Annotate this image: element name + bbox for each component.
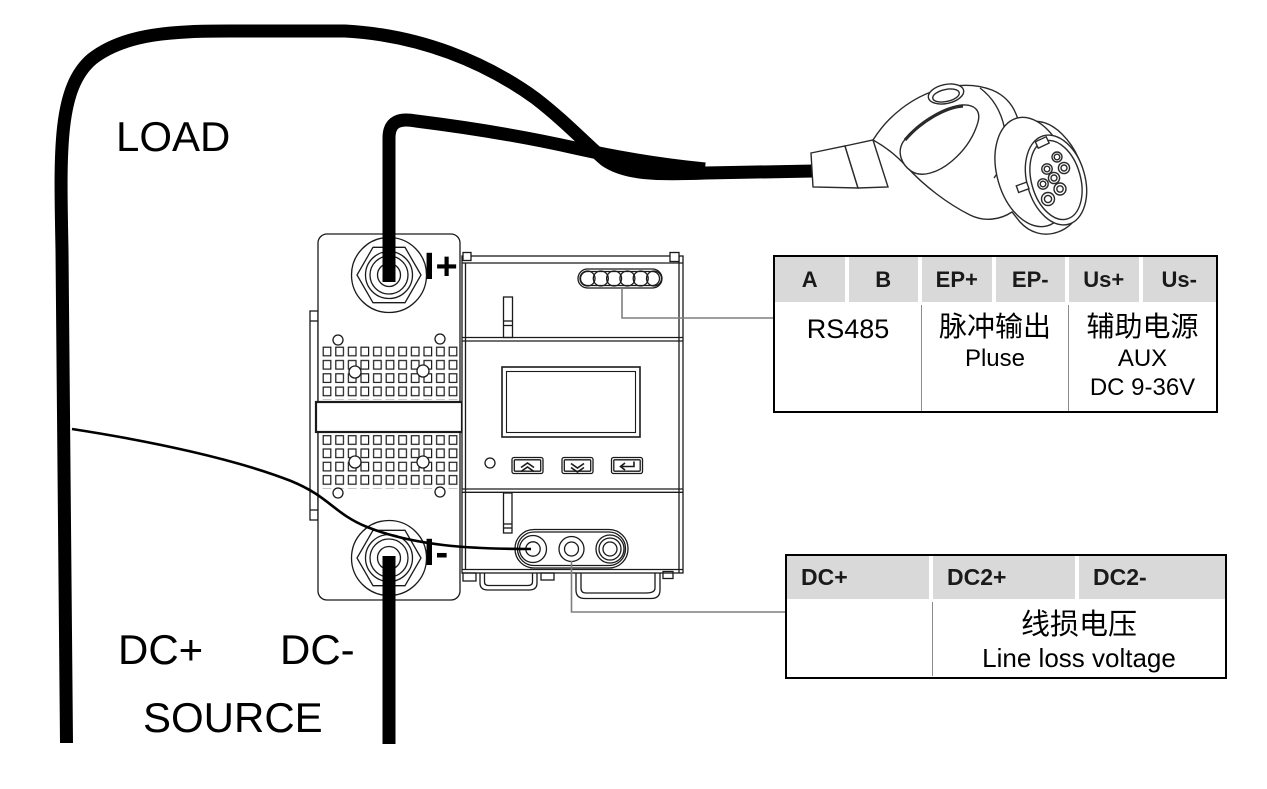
terminal-table-top: A B EP+ EP- Us+ Us- RS485 脉冲输出 Pluse 辅助电…	[773, 255, 1218, 413]
ev-connector	[811, 81, 1097, 236]
source-dc-plus-label: DC+	[118, 627, 203, 673]
cell-aux-power: 辅助电源 AUX DC 9-36V	[1069, 305, 1216, 411]
shunt-terminal-positive-label: I+	[424, 247, 459, 289]
header-cell-dc2-minus: DC2-	[1079, 556, 1225, 602]
header-cell-ep-minus: EP-	[996, 257, 1070, 305]
shunt-perforation-upper	[321, 345, 458, 400]
terminal-table-bottom-header: DC+ DC2+ DC2-	[787, 556, 1225, 602]
energy-meter	[462, 253, 683, 599]
terminal-table-bottom-body: 线损电压 Line loss voltage	[787, 602, 1225, 676]
shunt-perforation-lower	[321, 434, 458, 489]
cell-pulse-output: 脉冲输出 Pluse	[922, 305, 1069, 411]
cell-dc-plus-empty	[787, 602, 933, 676]
header-cell-ep-plus: EP+	[922, 257, 996, 305]
wiring-diagram: LOAD DC+ DC- SOURCE I+ I- A B EP+ EP- Us…	[0, 0, 1267, 789]
terminal-table-bottom: DC+ DC2+ DC2- 线损电压 Line loss voltage	[785, 554, 1227, 679]
header-cell-dc2-plus: DC2+	[933, 556, 1079, 602]
terminal-table-top-header: A B EP+ EP- Us+ Us-	[775, 257, 1216, 305]
meter-body	[462, 256, 683, 573]
meter-seal-screw-bottom	[504, 493, 513, 533]
header-cell-b: B	[849, 257, 923, 305]
header-cell-us-plus: Us+	[1069, 257, 1143, 305]
terminal-table-top-body: RS485 脉冲输出 Pluse 辅助电源 AUX DC 9-36V	[775, 305, 1216, 411]
cell-rs485: RS485	[775, 305, 922, 411]
header-cell-a: A	[775, 257, 849, 305]
cell-line-loss-voltage: 线损电压 Line loss voltage	[933, 602, 1225, 676]
source-dc-minus-label: DC-	[280, 627, 355, 673]
source-label: SOURCE	[143, 695, 323, 741]
header-cell-dc-plus: DC+	[787, 556, 933, 602]
header-cell-us-minus: Us-	[1143, 257, 1217, 305]
shunt-terminal-negative-label: I-	[424, 533, 449, 575]
meter-seal-screw-top	[504, 297, 513, 338]
load-label: LOAD	[116, 114, 230, 160]
shunt-resistance-band	[316, 402, 462, 432]
meter-din-clips	[463, 572, 673, 599]
